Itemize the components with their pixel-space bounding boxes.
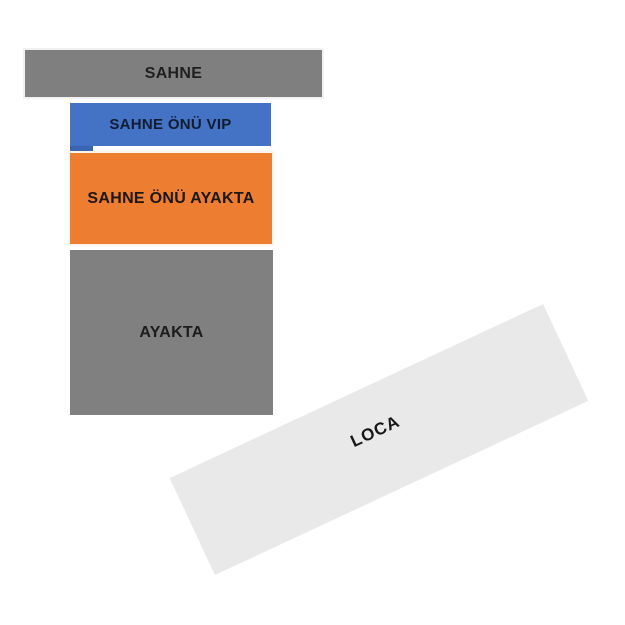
stage-front-vip-section[interactable]: SAHNE ÖNÜ VIP <box>70 103 271 146</box>
standing-section[interactable]: AYAKTA <box>70 250 273 415</box>
vip-section-notch <box>70 146 93 151</box>
standing-section-label: AYAKTA <box>139 324 203 342</box>
venue-seating-map: SAHNE SAHNE ÖNÜ VIP SAHNE ÖNÜ AYAKTA AYA… <box>0 0 625 625</box>
stage-front-standing-section[interactable]: SAHNE ÖNÜ AYAKTA <box>70 153 272 244</box>
loca-box-section-label: LOCA <box>347 411 403 451</box>
stage-front-standing-section-label: SAHNE ÖNÜ AYAKTA <box>87 190 254 208</box>
stage-section-label: SAHNE <box>145 65 203 83</box>
stage-front-vip-section-label: SAHNE ÖNÜ VIP <box>109 116 231 133</box>
stage-section[interactable]: SAHNE <box>25 50 322 97</box>
